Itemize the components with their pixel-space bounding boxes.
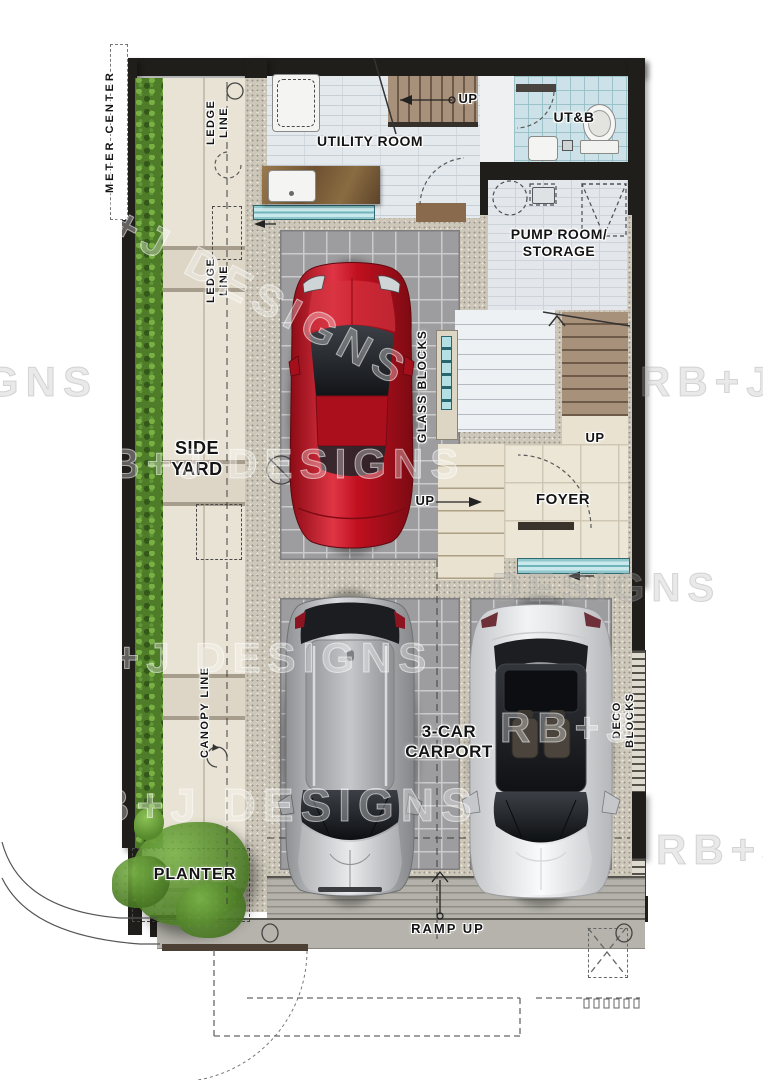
column-x-box	[588, 928, 628, 978]
east-wall-mid	[630, 585, 645, 650]
label-up-top-stair: UP	[452, 91, 484, 106]
label-ledge-line-2: LEDGE LINE	[205, 240, 229, 320]
utb-lavatory	[528, 136, 558, 161]
label-ramp-up: RAMP UP	[404, 921, 492, 936]
hall-to-utb-floor	[480, 76, 514, 162]
top-stair-edge	[388, 122, 478, 127]
label-meter-center: METER CENTER	[104, 48, 132, 216]
pump-motor	[532, 187, 555, 204]
label-planter: PLANTER	[134, 866, 256, 885]
ramp-strips	[267, 876, 645, 920]
side-yard-pavers	[163, 78, 245, 908]
survey-comb-marks	[584, 999, 639, 1008]
floor-plan-canvas: METER CENTER LEDGE LINE LEDGE LINE CANOP…	[0, 0, 763, 1080]
watermark-right-margin: RB+J DE	[640, 358, 763, 406]
label-deco-blocks: DECO BLOCKS	[611, 676, 633, 764]
foyer-south-window	[517, 558, 630, 574]
watermark-bottom-right: RB+J	[656, 826, 763, 874]
label-utility-room: UTILITY ROOM	[298, 133, 442, 150]
watermark-left-margin: GNS	[0, 358, 98, 406]
main-stair-treads	[562, 312, 628, 416]
label-ledge-line-1: LEDGE LINE	[205, 82, 229, 162]
washing-machine-outline	[277, 79, 315, 127]
utb-floor-drain	[562, 140, 573, 151]
top-wall	[122, 58, 645, 76]
label-canopy-line: CANOPY LINE	[199, 666, 223, 758]
label-utb: UT&B	[546, 109, 602, 126]
foyer-door-leaf	[518, 522, 574, 530]
entry-steps	[438, 444, 504, 580]
toilet-tank	[580, 140, 619, 154]
label-glass-blocks: GLASS BLOCKS	[415, 328, 439, 444]
tree-canopy-lump-bottom	[176, 882, 246, 938]
label-up-main-stair: UP	[578, 430, 612, 445]
label-up-entry: UP	[410, 493, 440, 508]
stair-hall-floor	[455, 310, 555, 432]
utb-pump-wall	[480, 162, 645, 180]
yard-utility-box-2	[196, 504, 242, 560]
gate-swing-arc	[198, 951, 307, 1080]
label-side-yard: SIDE YARD	[158, 438, 236, 480]
utility-door-threshold	[416, 203, 466, 222]
utility-sink	[268, 170, 316, 202]
label-carport: 3-CAR CARPORT	[396, 722, 502, 762]
label-pump-room: PUMP ROOM/ STORAGE	[498, 226, 620, 259]
label-foyer: FOYER	[527, 491, 599, 509]
utility-south-window	[253, 205, 375, 220]
washing-machine	[272, 74, 320, 132]
glass-blocks-panel	[441, 336, 452, 410]
faucet-dot	[289, 191, 294, 196]
